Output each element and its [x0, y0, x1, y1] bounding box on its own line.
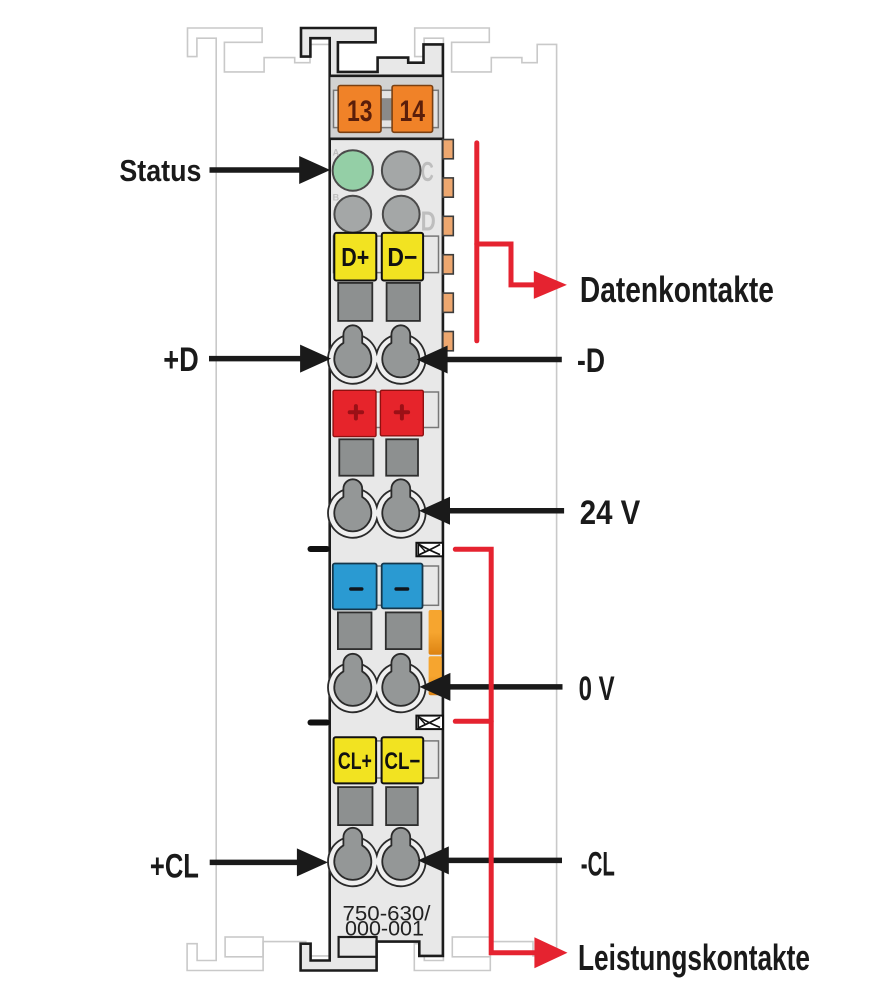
- svg-text:-CL: -CL: [581, 845, 615, 883]
- svg-text:D+: D+: [341, 242, 369, 272]
- svg-text:+D: +D: [163, 341, 199, 379]
- svg-text:C: C: [421, 156, 434, 187]
- svg-text:000-001: 000-001: [345, 918, 424, 941]
- svg-text:Leistungskontakte: Leistungskontakte: [578, 937, 810, 978]
- svg-text:A: A: [333, 147, 340, 157]
- svg-text:13: 13: [347, 95, 373, 128]
- svg-text:+CL: +CL: [150, 848, 199, 886]
- svg-text:B: B: [333, 192, 340, 202]
- svg-text:Status: Status: [119, 153, 201, 188]
- svg-text:D: D: [421, 206, 436, 237]
- svg-text:-D: -D: [577, 342, 605, 380]
- svg-text:0 V: 0 V: [579, 670, 615, 708]
- svg-text:24 V: 24 V: [580, 494, 641, 532]
- svg-text:D−: D−: [387, 242, 417, 272]
- svg-text:Datenkontakte: Datenkontakte: [580, 269, 774, 310]
- svg-text:CL−: CL−: [384, 748, 420, 775]
- svg-text:CL+: CL+: [338, 748, 372, 775]
- svg-text:14: 14: [400, 95, 426, 128]
